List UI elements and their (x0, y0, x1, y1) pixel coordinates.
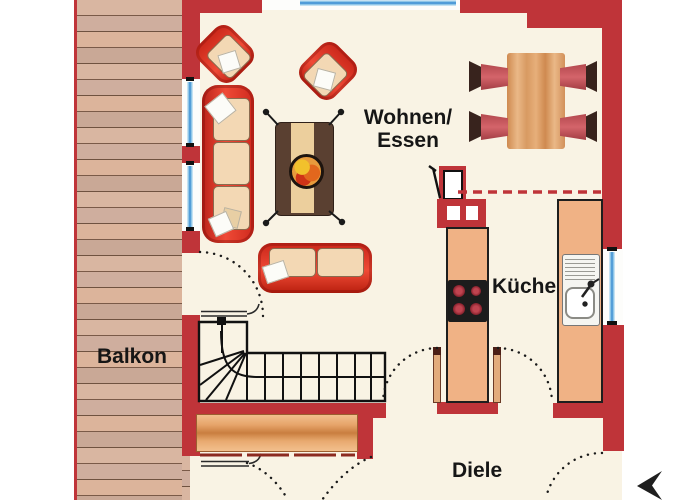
window-balcony-1 (182, 79, 200, 146)
floor-plan: Wohnen/ Essen Küche Balkon Diele (0, 0, 700, 500)
burner (453, 285, 465, 297)
wall-balcony-b (182, 231, 200, 253)
room-label-balcony: Balkon (90, 345, 174, 369)
sofa-2-seat (258, 243, 372, 293)
room-label-hallway: Diele (452, 459, 528, 483)
cooktop (448, 280, 487, 322)
balcony-deck-lower-edge (182, 455, 190, 500)
wall-kitchen-left (437, 402, 498, 414)
door-leaf-kitchen-right (493, 347, 501, 403)
wall-balcony-a (182, 0, 200, 79)
fruit-bowl (289, 154, 324, 189)
wall-pier-mid (357, 415, 373, 459)
room-label-kitchen: Küche (492, 275, 576, 299)
wall-kitchen-right (553, 403, 606, 418)
sideboard (196, 414, 358, 452)
living-label-line1: Wohnen/ (348, 106, 468, 129)
window-right (602, 249, 623, 325)
wall-top-right (460, 0, 528, 13)
wall-right-upper (602, 13, 622, 249)
wall-balcony-pier (182, 146, 200, 163)
dining-table (507, 53, 565, 149)
door-leaf-kitchen-left (433, 347, 441, 403)
room-label-living-dining: Wohnen/ Essen (348, 106, 468, 152)
sofa-3-seat (202, 85, 254, 243)
window-balcony-2 (182, 163, 200, 231)
burner (453, 303, 465, 315)
living-label-line2: Essen (348, 129, 468, 152)
wall-right-mid (603, 325, 624, 451)
burner (471, 286, 481, 296)
coffee-table (275, 122, 334, 216)
balcony-deck (74, 0, 182, 500)
burner (470, 303, 482, 315)
entrance-arrow (637, 471, 662, 500)
window-top (262, 0, 460, 10)
